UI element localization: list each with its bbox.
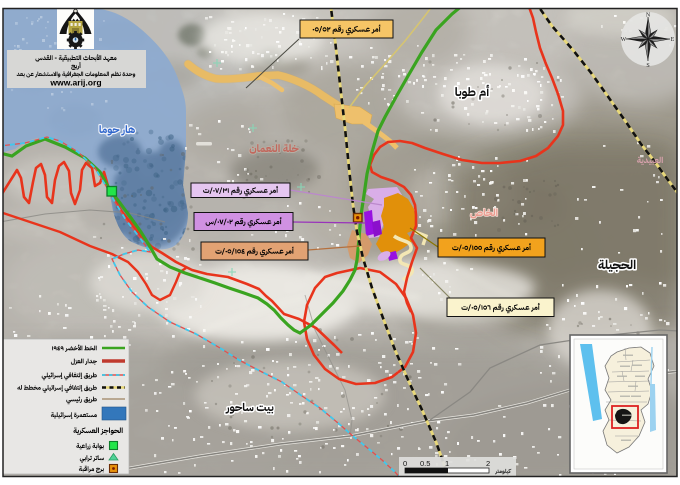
svg-text:N: N [646,13,651,19]
svg-text:2: 2 [486,459,490,468]
svg-text:W: W [621,37,627,43]
svg-text:S: S [646,63,649,69]
svg-text:1: 1 [445,459,449,468]
svg-text:E: E [671,37,675,43]
svg-text:0: 0 [403,459,407,468]
svg-text:0.5: 0.5 [420,459,430,468]
svg-text:www.arij.org: www.arij.org [49,78,101,88]
